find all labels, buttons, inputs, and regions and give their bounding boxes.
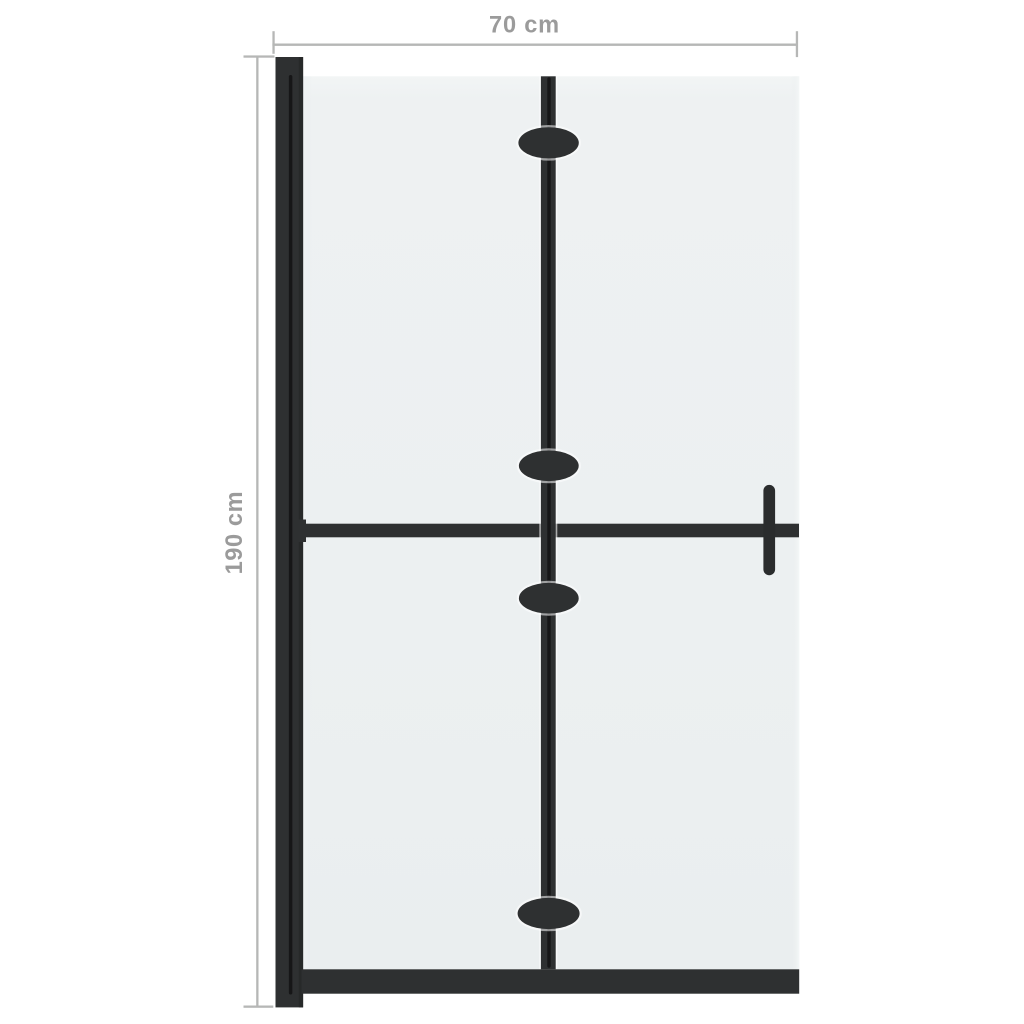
svg-text:190 cm: 190 cm [222, 491, 248, 575]
svg-text:70 cm: 70 cm [489, 13, 560, 39]
